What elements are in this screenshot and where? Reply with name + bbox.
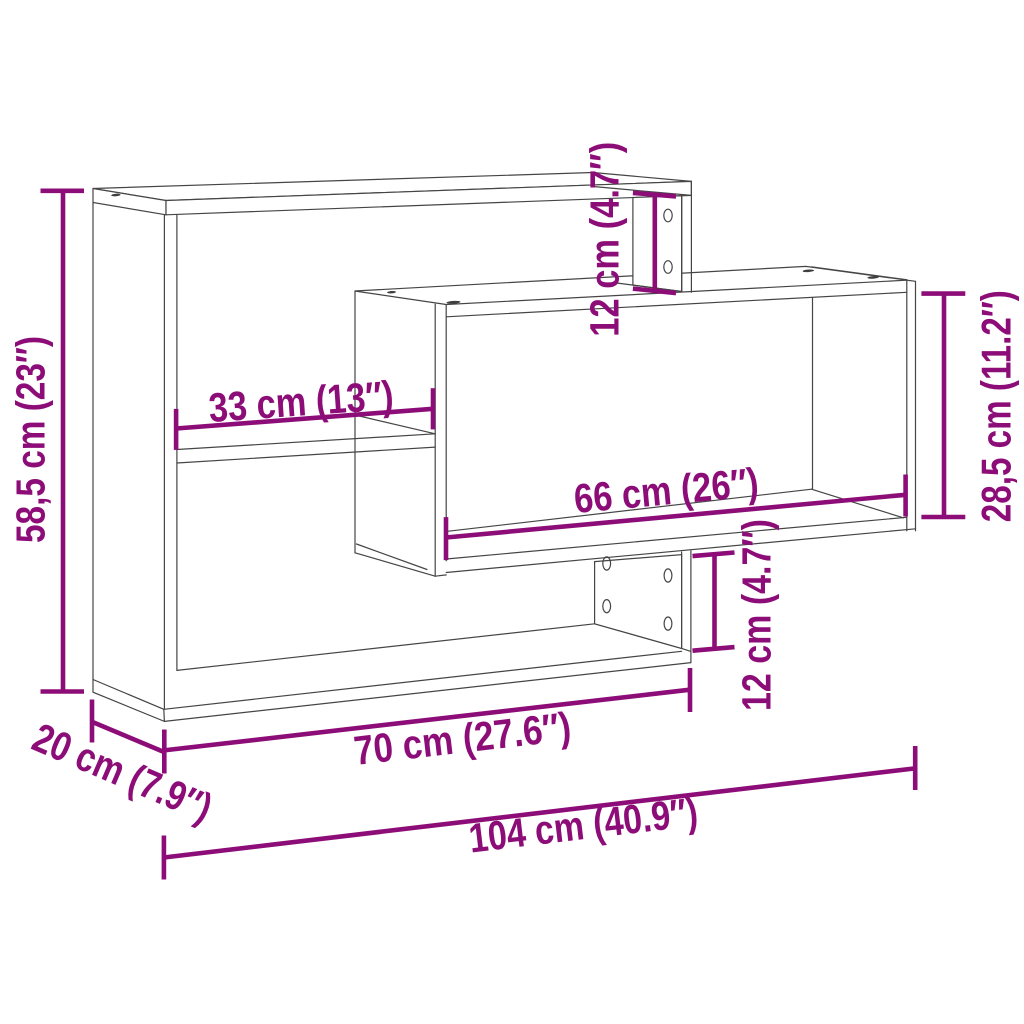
svg-text:12 cm (4.7″): 12 cm (4.7″)	[582, 142, 628, 337]
svg-text:12 cm (4.7″): 12 cm (4.7″)	[734, 519, 780, 711]
svg-text:28,5 cm (11.2″): 28,5 cm (11.2″)	[973, 290, 1020, 522]
svg-text:58,5 cm (23″): 58,5 cm (23″)	[7, 336, 53, 543]
